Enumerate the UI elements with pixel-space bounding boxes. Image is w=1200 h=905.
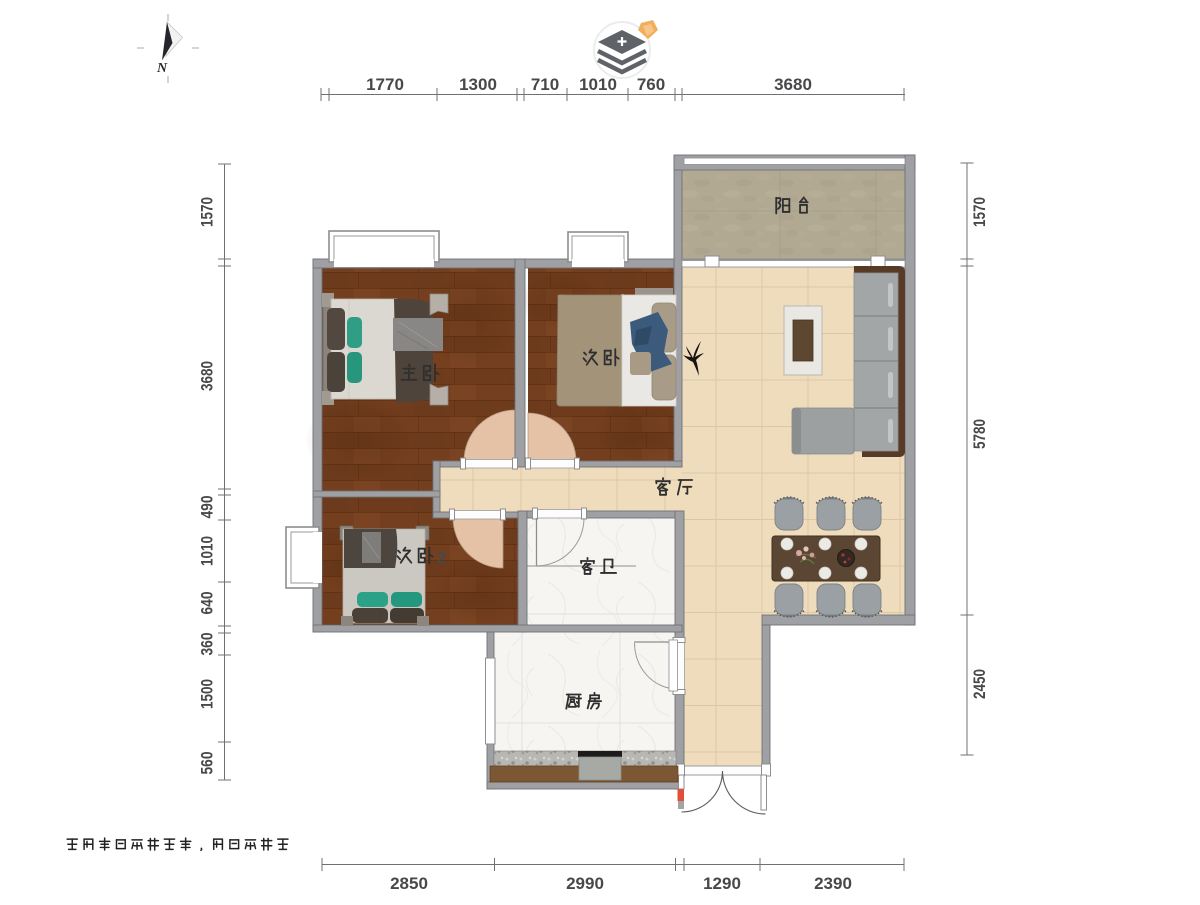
svg-text:2390: 2390 <box>814 874 852 893</box>
svg-text:490: 490 <box>198 496 217 519</box>
svg-text:N: N <box>156 61 168 76</box>
svg-text:1290: 1290 <box>703 874 741 893</box>
svg-text:560: 560 <box>198 752 217 775</box>
svg-text:5780: 5780 <box>970 419 989 449</box>
svg-text:1570: 1570 <box>970 197 989 227</box>
svg-text:1500: 1500 <box>198 679 217 709</box>
svg-text:2850: 2850 <box>390 874 428 893</box>
svg-text:2990: 2990 <box>566 874 604 893</box>
svg-text:3680: 3680 <box>198 361 217 391</box>
svg-text:1300: 1300 <box>459 75 497 94</box>
svg-text:640: 640 <box>198 592 217 615</box>
svg-text:1570: 1570 <box>198 197 217 227</box>
svg-text:3680: 3680 <box>774 75 812 94</box>
svg-text:1010: 1010 <box>579 75 617 94</box>
svg-text:710: 710 <box>531 75 559 94</box>
svg-text:760: 760 <box>637 75 665 94</box>
svg-text:360: 360 <box>198 633 217 656</box>
svg-text:1010: 1010 <box>198 536 217 566</box>
svg-text:2: 2 <box>437 548 446 567</box>
svg-text:1770: 1770 <box>366 75 404 94</box>
svg-text:2450: 2450 <box>970 669 989 699</box>
